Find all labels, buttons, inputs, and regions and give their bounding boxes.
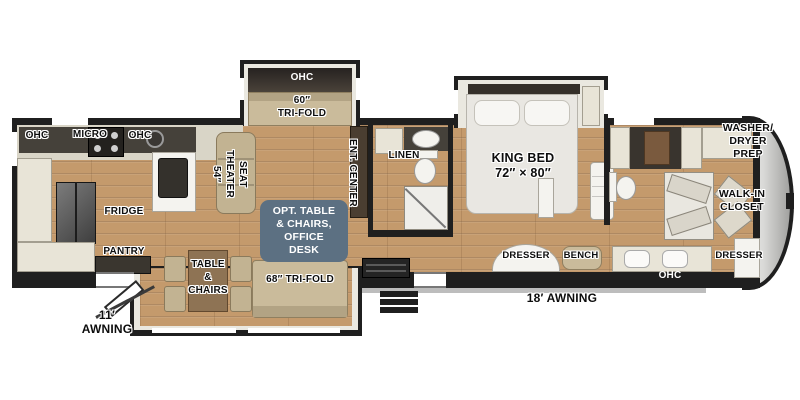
- corner-counter: [17, 242, 95, 272]
- window-slide-dinette-right: [248, 328, 340, 333]
- floorplan: OPT. TABLE & CHAIRS, OFFICE DESK OHC MIC…: [0, 0, 800, 400]
- nightstand: [582, 86, 600, 126]
- kitchen-sink: [158, 158, 188, 198]
- label-linen: LINEN: [378, 150, 430, 162]
- sofa-68-back-cushion: [253, 306, 347, 317]
- vanity-sink-right: [662, 250, 688, 268]
- dinette-chair-1: [164, 256, 186, 282]
- refrigerator-door-seam: [75, 182, 77, 244]
- exterior-griddle: [362, 258, 410, 278]
- midbath-wall-bottom: [368, 230, 453, 237]
- headboard: [468, 84, 580, 94]
- entry-step-1: [380, 291, 418, 297]
- entry-step-2: [380, 299, 418, 305]
- label-awning-rear: 11′ AWNING: [78, 308, 136, 336]
- window-top-wall-kitchen: [52, 118, 88, 125]
- label-ent-center: ENT. CENTER: [346, 128, 372, 218]
- label-dresser-bedroom: DRESSER: [494, 250, 558, 262]
- entry-step-3: [380, 307, 418, 313]
- option-box-label: OPT. TABLE & CHAIRS, OFFICE DESK: [273, 205, 335, 257]
- griddle-grate-1: [366, 264, 406, 266]
- label-dinette: TABLE & CHAIRS: [184, 258, 232, 297]
- window-slide-trifold-right: [356, 78, 360, 100]
- dinette-chair-4: [230, 286, 252, 312]
- griddle-grate-2: [366, 270, 406, 272]
- pillow-left: [474, 100, 520, 126]
- washer-hookup-panel: [644, 131, 670, 165]
- washer-cabinet-left: [610, 127, 630, 169]
- pillow-right: [524, 100, 570, 126]
- label-washer-dryer: WASHER/ DRYER PREP: [712, 122, 784, 161]
- main-entry-door: [414, 272, 446, 288]
- left-wall-cabinet: [17, 158, 52, 242]
- window-slide-trifold-left: [240, 78, 244, 100]
- label-walk-in-closet: WALK-IN CLOSET: [708, 188, 776, 214]
- bedroom-wardrobe: [538, 178, 554, 218]
- toilet-bowl-front: [616, 176, 636, 200]
- label-bath-ohc: OHC: [648, 270, 692, 282]
- label-trifold-60: 60″ TRI-FOLD: [254, 94, 350, 120]
- hitch-mark: [786, 193, 794, 209]
- label-kitchen-ohc-left: OHC: [14, 130, 60, 142]
- dinette-chair-2: [164, 286, 186, 312]
- window-top-wall-bath: [614, 118, 654, 125]
- midbath-wall-right: [448, 125, 453, 237]
- vanity-sink-left: [624, 250, 650, 268]
- label-theater-seat: 54″ THEATER SEAT: [210, 134, 262, 214]
- option-box: OPT. TABLE & CHAIRS, OFFICE DESK: [260, 200, 348, 262]
- label-fridge: FRIDGE: [92, 206, 156, 218]
- label-king-bed: KING BED 72″ × 80″: [474, 151, 572, 181]
- label-pantry: PANTRY: [96, 246, 152, 258]
- label-dresser-front: DRESSER: [708, 250, 770, 262]
- window-slide-king-right: [604, 90, 608, 114]
- label-bench: BENCH: [558, 250, 604, 262]
- label-kitchen-ohc-right: OHC: [116, 130, 164, 142]
- label-slide-ohc: OHC: [272, 72, 332, 84]
- midbath-sink: [412, 130, 440, 148]
- window-slide-king-left: [454, 90, 458, 114]
- dinette-chair-3: [230, 256, 252, 282]
- washer-cabinet-right: [681, 127, 702, 169]
- label-awning-main: 18′ AWNING: [508, 292, 616, 304]
- label-kitchen-micro: MICRO: [64, 129, 116, 141]
- label-trifold-68: 68″ TRI-FOLD: [250, 274, 350, 286]
- window-slide-dinette-left: [152, 328, 236, 333]
